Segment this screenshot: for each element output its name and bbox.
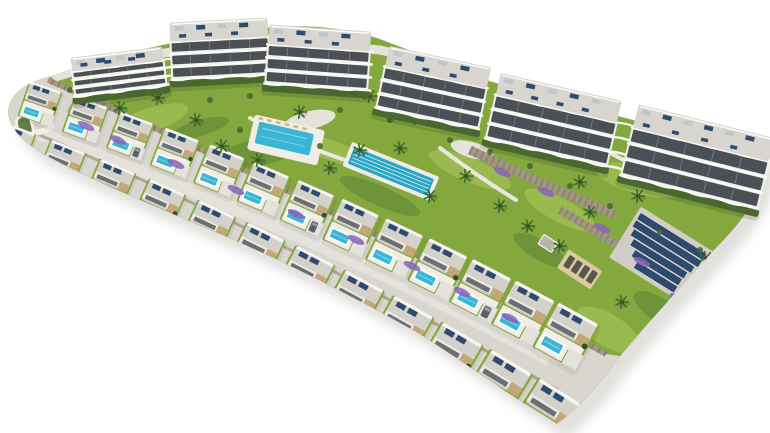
villa-pool-highlight [523, 418, 539, 428]
palm-crown [398, 146, 402, 150]
balcony-glass-mullion [306, 76, 307, 84]
villa-driveway [11, 155, 27, 171]
villa-pool-highlight [44, 171, 57, 176]
villa-pool-highlight [237, 257, 251, 264]
palm-crown [298, 110, 302, 114]
balcony-glass-mullion [328, 64, 329, 72]
palm-crown [194, 118, 198, 122]
rooftop-solar-panel [277, 38, 284, 42]
palm-crown [464, 174, 468, 178]
balcony-glass-mullion [327, 77, 328, 85]
balcony-glass-mullion [286, 61, 287, 69]
rooftop-unit [218, 24, 227, 29]
palm-crown [620, 300, 624, 304]
rooftop-unit [239, 22, 248, 27]
villa-pool-highlight [285, 281, 300, 289]
rooftop-unit [175, 26, 184, 31]
palm-crown [256, 158, 260, 162]
palm-crown [428, 194, 432, 198]
palm-crown [220, 144, 224, 148]
rooftop-solar-panel [231, 31, 238, 35]
garden-tree [24, 149, 30, 155]
villa-pool-highlight [428, 360, 443, 369]
balcony-glass-mullion [329, 51, 330, 59]
development-aerial-render [0, 0, 770, 433]
rooftop-solar-panel [205, 33, 212, 37]
rooftop-unit [274, 29, 283, 34]
villa-window-strip [0, 136, 19, 147]
villa-pool-highlight [380, 333, 395, 342]
balcony-glass-mullion [308, 50, 309, 58]
shrub [207, 97, 213, 103]
palm-crown [358, 148, 362, 152]
apartment-block-2b [260, 24, 375, 103]
balcony-glass-mullion [285, 74, 286, 82]
balcony-glass-mullion [348, 66, 349, 74]
villa-pool-highlight [0, 152, 9, 157]
villa-pool-deck [0, 144, 16, 166]
palm-crown [526, 224, 530, 228]
palm-crown [588, 210, 592, 214]
villa-driveway [253, 263, 272, 283]
balcony-glass-mullion [349, 53, 350, 61]
rooftop-unit [319, 32, 328, 37]
palm-crown [578, 180, 582, 184]
apartment-block-2a [165, 17, 278, 92]
shrub [447, 137, 453, 143]
rooftop-unit [196, 25, 205, 30]
palm-crown [328, 166, 332, 170]
shrub [527, 163, 533, 169]
villa-pool [376, 327, 400, 347]
car [304, 290, 316, 303]
shrub [657, 229, 663, 235]
car-windshield [308, 292, 314, 297]
palm-crown [118, 106, 122, 110]
car-windshield [500, 402, 507, 408]
villa-pool [0, 147, 12, 161]
shrub [237, 127, 243, 133]
balcony-glass-mullion [307, 63, 308, 71]
rooftop-unit [341, 34, 350, 39]
shrub [247, 93, 253, 99]
shrub [697, 247, 703, 253]
shrub [317, 143, 323, 149]
villa-driveway [445, 368, 467, 390]
shrub [67, 87, 73, 93]
shrub [607, 203, 613, 209]
rooftop-solar-panel [179, 34, 186, 38]
villa-driveway [301, 287, 321, 307]
villa-driveway [397, 340, 418, 362]
render-canvas [0, 0, 770, 433]
palm-crown [636, 194, 640, 198]
balcony-glass-mullion [348, 79, 349, 87]
shrub [567, 183, 573, 189]
villa-solar-panel [5, 126, 14, 133]
balcony-glass-mullion [287, 48, 288, 56]
palm-crown [498, 204, 502, 208]
villa-driveway [349, 313, 370, 334]
villa-pool-highlight [476, 388, 492, 398]
rooftop-solar-panel [305, 40, 312, 44]
rooftop-unit [296, 30, 305, 35]
rooftop-solar-panel [332, 42, 339, 46]
villa-pool-highlight [333, 306, 348, 314]
palm-crown [558, 244, 562, 248]
car [495, 400, 508, 415]
villa-terrace [0, 142, 27, 160]
shrub [337, 107, 343, 113]
